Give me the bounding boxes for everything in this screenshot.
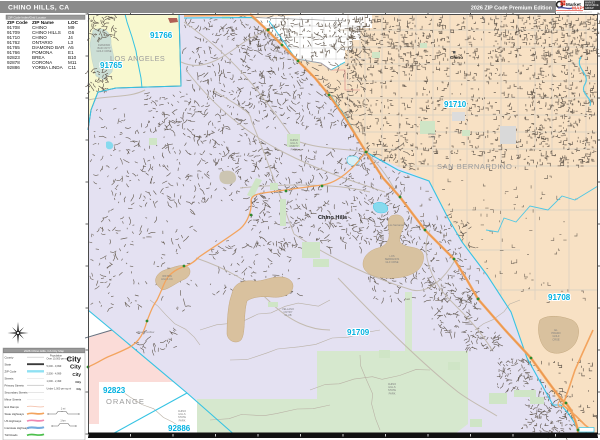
svg-text:GROUP: GROUP [585, 7, 594, 10]
svg-text:2026 Chino Hills, CA City Map: 2026 Chino Hills, CA City Map [24, 349, 65, 353]
svg-text:ZIP Code: ZIP Code [5, 370, 17, 374]
svg-text:2,500 - 4,999: 2,500 - 4,999 [47, 373, 62, 376]
svg-text:Toll Roads: Toll Roads [5, 433, 19, 437]
svg-text:County: County [5, 355, 14, 359]
svg-text:Under 1,000 per sq mi: Under 1,000 per sq mi [47, 387, 72, 390]
svg-text:US Highways: US Highways [5, 419, 22, 423]
svg-text:YORBA LINDA: YORBA LINDA [32, 65, 64, 70]
svg-text:State: State [5, 362, 12, 366]
svg-text:City: City [76, 388, 81, 391]
svg-text:Exit Ramps: Exit Ramps [5, 405, 20, 409]
svg-text:1 mi: 1 mi [61, 408, 66, 411]
svg-text:City: City [75, 380, 81, 384]
svg-text:City: City [72, 372, 81, 377]
svg-text:City: City [70, 365, 82, 371]
svg-text:State Highways: State Highways [5, 412, 25, 416]
svg-text:www.marketmaps.com 1-888-434-6: www.marketmaps.com 1-888-434-6277 [557, 11, 593, 14]
svg-text:Primary Streets: Primary Streets [5, 384, 25, 388]
svg-text:5,000 - 9,999: 5,000 - 9,999 [47, 365, 62, 368]
svg-text:Interstate Highways: Interstate Highways [5, 426, 30, 430]
svg-text:ZIP Code Index/Grid Locator: ZIP Code Index/Grid Locator [8, 15, 46, 19]
svg-text:C11: C11 [68, 65, 77, 70]
svg-text:92886: 92886 [7, 65, 20, 70]
svg-text:1 km: 1 km [60, 420, 65, 423]
svg-text:CHINO HILLS, CA: CHINO HILLS, CA [8, 5, 70, 12]
svg-text:Secondary Streets: Secondary Streets [5, 391, 29, 395]
svg-text:1,000 - 2,499: 1,000 - 2,499 [47, 380, 62, 383]
svg-text:Minor Streets: Minor Streets [5, 398, 22, 402]
svg-text:Streets: Streets [5, 377, 14, 381]
svg-text:2026 ZIP Code Premium Edition: 2026 ZIP Code Premium Edition [471, 6, 552, 12]
svg-text:City: City [67, 355, 82, 364]
